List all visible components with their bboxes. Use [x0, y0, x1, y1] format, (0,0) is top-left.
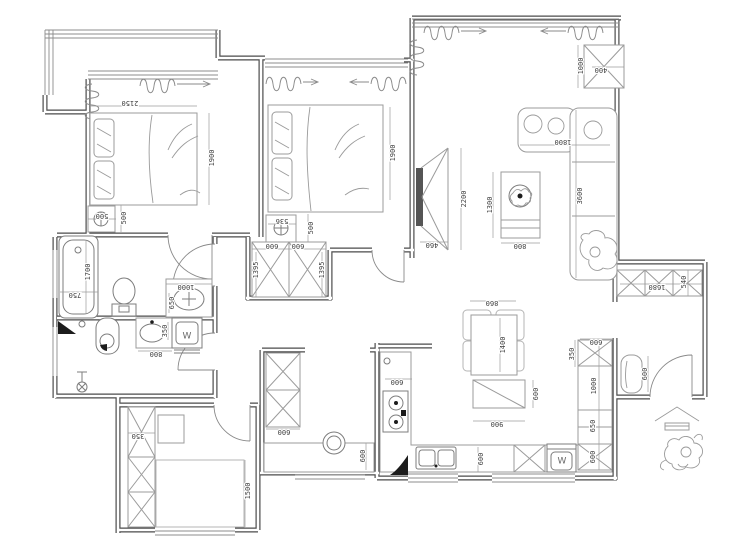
study-wardrobe [128, 407, 155, 527]
entry-door [650, 355, 692, 397]
dining-table-width: 860 [486, 299, 499, 307]
kitchen-sink [416, 447, 456, 469]
dining-set [463, 310, 524, 375]
study-bed [156, 460, 244, 527]
basin1-counter-width: 1000 [178, 283, 195, 291]
pantry-counter-depth: 600 [359, 450, 367, 463]
column-seg-600: 600 [589, 451, 597, 464]
bedroom1-window [88, 71, 218, 79]
study-desk [158, 415, 184, 443]
entry-bench [621, 355, 642, 393]
bed2-nightstand-width: 536 [276, 217, 289, 225]
coffee-table [501, 172, 540, 238]
drain-icon [75, 247, 81, 253]
curtain-icon [541, 26, 603, 40]
faucet-icon [435, 465, 438, 468]
shower-marker [58, 321, 76, 334]
balcony-window [45, 30, 218, 95]
study-bed-width: 1500 [244, 483, 252, 500]
study-cabinet-depth: 350 [132, 432, 145, 440]
faucet-icon [150, 320, 154, 324]
living-cabinet-length: 1000 [577, 58, 585, 75]
sofa-chaise-width: 1800 [555, 138, 572, 146]
shoe-cabinet-depth: 540 [680, 276, 688, 289]
bathtub-width: 750 [69, 291, 82, 299]
dining-table-length: 1400 [499, 337, 507, 354]
bedroom1-door [168, 235, 212, 279]
wardrobe-depth-right: 1395 [318, 262, 326, 279]
toilet [112, 278, 136, 316]
stove-counter-width: 600 [391, 378, 404, 386]
bed1-width: 2150 [122, 99, 139, 107]
coffee-table-width: 800 [514, 242, 527, 250]
wardrobe-depth-left: 1395 [252, 262, 260, 279]
coffee-table-length: 1300 [486, 197, 494, 214]
shoe-cabinet-width: 1680 [649, 283, 666, 291]
basin1-counter-depth: 650 [168, 297, 176, 310]
column-top-width: 600 [590, 338, 603, 346]
column-seg-650: 650 [589, 420, 597, 433]
wardrobe-door-left: 600 [266, 242, 279, 250]
tv-icon [416, 168, 423, 226]
basin2-counter-depth: 350 [161, 325, 169, 338]
floor-plan-canvas: 2150190050050019005365006006001395139522… [0, 0, 740, 550]
study-window [155, 527, 235, 535]
study-door [214, 405, 250, 441]
washer-bathroom: W [183, 332, 192, 342]
tv-unit [416, 148, 448, 250]
bedroom2-window [265, 59, 408, 67]
dining-table [471, 315, 517, 375]
basin2-counter-width: 800 [150, 350, 163, 358]
decorative-figure [660, 434, 702, 470]
bed1-nightstand-width: 500 [96, 212, 109, 220]
kitchen-cabinet [514, 445, 545, 472]
column-seg-1000: 1000 [590, 378, 598, 395]
sideboard [473, 380, 525, 408]
curtain-icon [350, 77, 406, 91]
sideboard-width: 900 [491, 420, 504, 428]
bidet [96, 318, 119, 354]
curtain-icon [424, 26, 486, 40]
bedroom1-bed [90, 113, 200, 205]
living-cabinet-depth: 400 [595, 66, 608, 74]
showerhead-icon [79, 321, 85, 327]
storage-column [578, 340, 612, 470]
bedroom2-door [372, 250, 404, 282]
washer-kitchen: W [558, 457, 567, 467]
floor-drain [77, 372, 87, 392]
curtain-icon [266, 77, 318, 91]
bed1-length: 1900 [208, 150, 216, 167]
sideboard-depth: 600 [532, 388, 540, 401]
sofa-length: 3600 [576, 188, 584, 205]
wardrobe-door-right: 600 [292, 242, 305, 250]
pantry-cabinet-width: 600 [278, 428, 291, 436]
curtain-icon [140, 79, 210, 93]
sink-counter-depth: 600 [477, 453, 485, 466]
wardrobe-cabinet [252, 242, 326, 297]
bed2-length: 1900 [389, 145, 397, 162]
bathtub-length: 1700 [84, 264, 92, 281]
floor-plan-drawing: 2150190050050019005365006006001395139522… [0, 0, 740, 550]
bedroom2-bed [268, 105, 383, 212]
tv-wall-length: 2200 [460, 191, 468, 208]
pantry-counter [264, 432, 374, 472]
bed1-nightstand-depth: 500 [120, 212, 128, 225]
pantry-cabinet [266, 353, 300, 427]
entry-bench-length: 600 [641, 368, 649, 381]
bed2-nightstand-depth: 500 [307, 222, 315, 235]
tv-unit-depth: 460 [426, 241, 439, 249]
entry-arrow-icon [655, 407, 699, 430]
shoe-cabinet [617, 270, 702, 296]
bathtub [59, 236, 98, 318]
column-seg-350: 350 [568, 348, 576, 361]
